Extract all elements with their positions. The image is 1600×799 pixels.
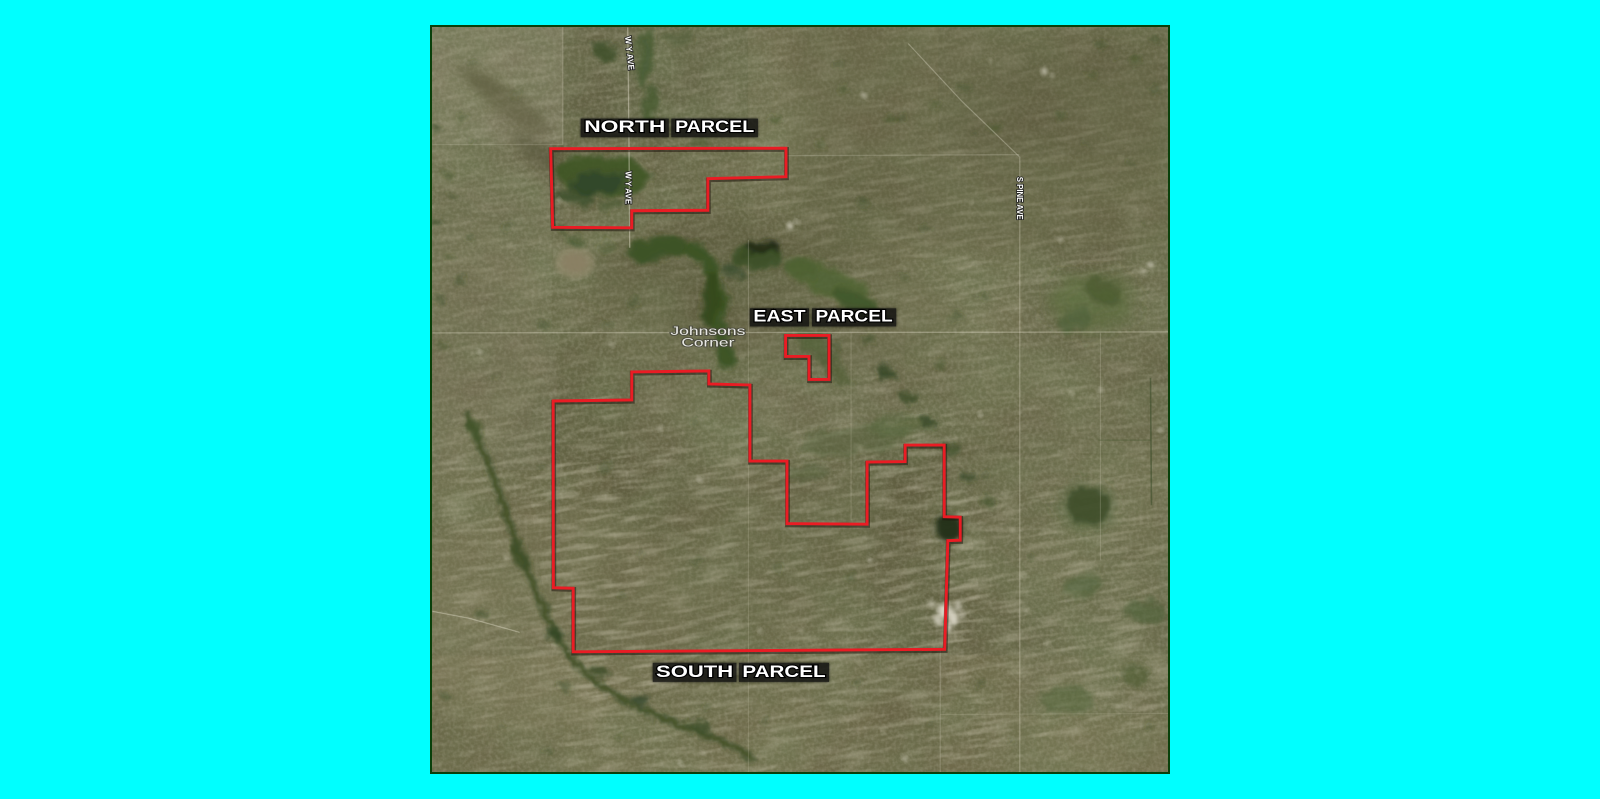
svg-text:NORTH: NORTH xyxy=(584,117,665,136)
svg-text:PARCEL: PARCEL xyxy=(675,117,754,136)
svg-text:S PINE AVE: S PINE AVE xyxy=(1015,177,1025,220)
svg-text:Corner: Corner xyxy=(681,336,734,349)
svg-text:PARCEL: PARCEL xyxy=(742,662,825,681)
svg-text:EAST: EAST xyxy=(753,306,805,325)
svg-text:W Y AVE: W Y AVE xyxy=(624,171,634,204)
svg-text:SOUTH: SOUTH xyxy=(656,662,733,681)
svg-text:PARCEL: PARCEL xyxy=(816,306,893,325)
